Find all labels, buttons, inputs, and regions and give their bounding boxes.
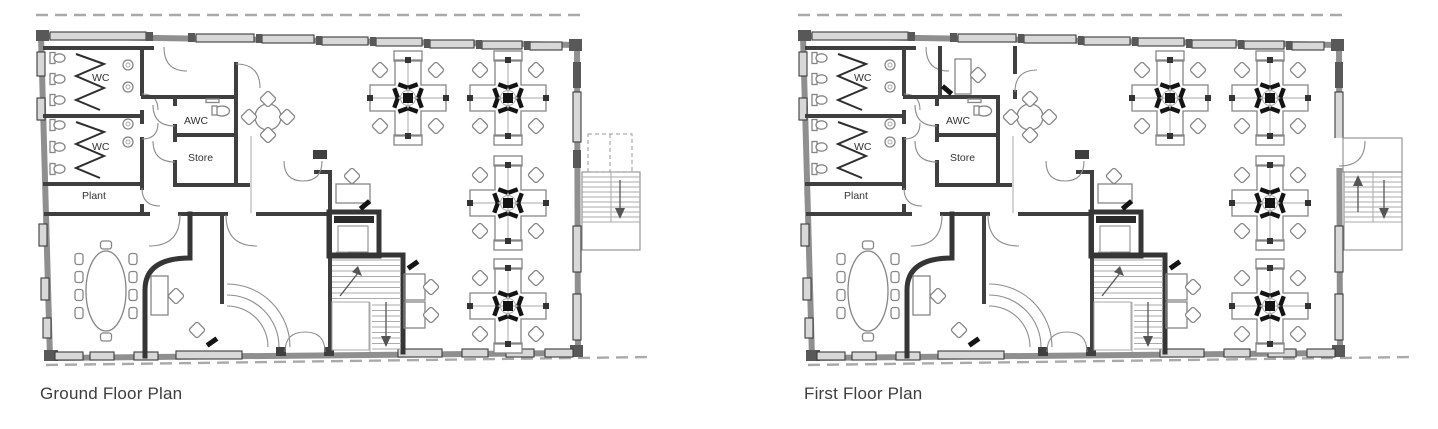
room-label-awc: AWC xyxy=(946,115,971,127)
ground-floor-plan-drawing: WC WC AWC Store Plant xyxy=(0,0,660,429)
room-label-store: Store xyxy=(950,152,975,164)
room-label-wc-upper: WC xyxy=(854,72,872,84)
room-label-plant: Plant xyxy=(844,190,868,202)
room-label-wc-lower: WC xyxy=(854,141,872,153)
floor-plan-geometry xyxy=(36,15,648,365)
room-label-wc-upper: WC xyxy=(92,72,110,84)
room-label-awc: AWC xyxy=(184,115,209,127)
room-label-plant: Plant xyxy=(82,190,106,202)
room-label-wc-lower: WC xyxy=(92,141,110,153)
plan-caption-ground: Ground Floor Plan xyxy=(40,384,182,404)
plan-sheet: WC WC AWC Store Plant Ground Floor Plan xyxy=(0,0,1438,429)
floor-plan-geometry xyxy=(798,15,1410,365)
room-label-store: Store xyxy=(188,152,213,164)
plan-caption-first: First Floor Plan xyxy=(804,384,922,404)
first-floor-plan-drawing: WC WC AWC Store Plant xyxy=(762,0,1422,429)
